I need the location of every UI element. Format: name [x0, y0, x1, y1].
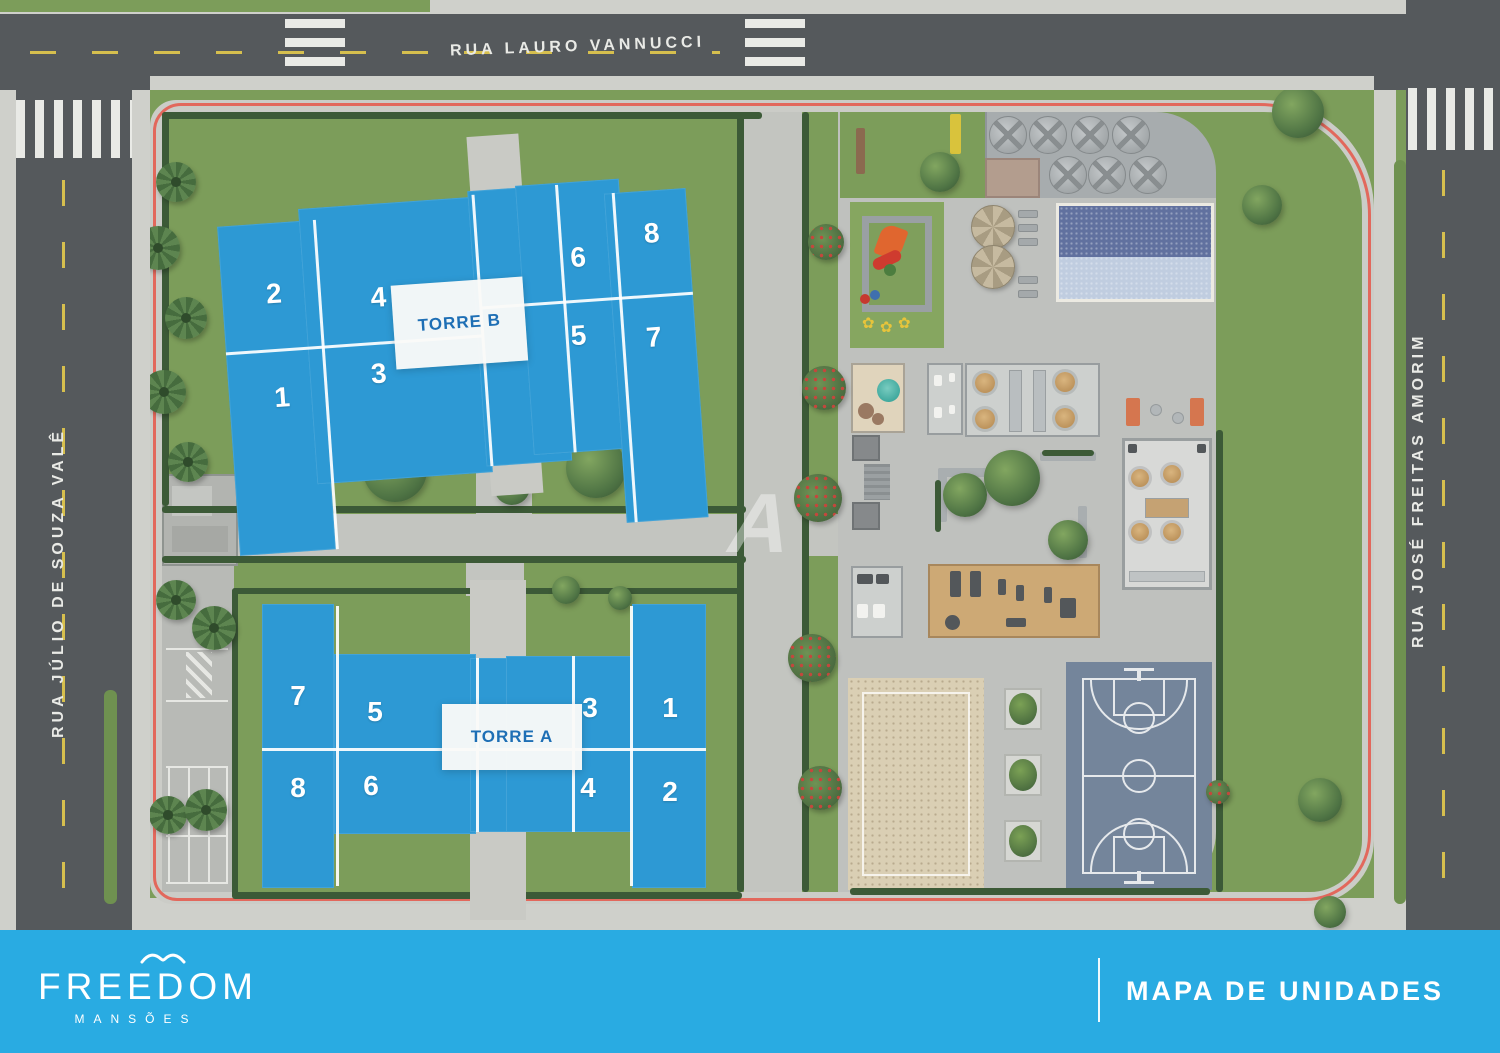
decor-layer [0, 0, 1500, 930]
unit-number-1: 1 [273, 381, 291, 414]
crosswalk [1408, 88, 1498, 150]
street-name-top: RUA LAURO VANNUCCI [450, 34, 706, 61]
brand-logo: FREEDOM MANSÕES [38, 948, 234, 1026]
grass-verge [1394, 160, 1406, 904]
palm-tree [149, 796, 187, 834]
pool-lounger [1018, 224, 1038, 232]
unit-number-3: 3 [370, 357, 388, 390]
tree [1272, 86, 1324, 138]
sun-umbrella-icon [971, 245, 1015, 289]
road-right: RUA JOSÉ FREITAS AMORIM [1406, 0, 1500, 930]
street-name-left: RUA JÚLIO DE SOUZA VALÊ [50, 428, 68, 738]
palm-tree [168, 442, 208, 482]
palm-tree [156, 580, 196, 620]
pool-lounger [1018, 276, 1038, 284]
parking-line [166, 882, 228, 884]
grass-strip [0, 0, 430, 12]
crosswalk [16, 100, 132, 158]
sidewalk [150, 76, 1374, 90]
planter-box [1004, 820, 1042, 862]
left-outer-sidewalk [0, 90, 16, 930]
right-inner-sidewalk [1374, 90, 1396, 930]
unit-number-6: 6 [363, 770, 379, 802]
tower-torre-a: 75318642 TORRE A [238, 596, 724, 902]
pool-lounger [1018, 210, 1038, 218]
planter-box [1004, 688, 1042, 730]
flowering-bush [1206, 780, 1230, 804]
parking-line [166, 835, 228, 837]
unit-number-1: 1 [662, 692, 678, 724]
footer-banner: FREEDOM MANSÕES MAPA DE UNIDADES [0, 930, 1500, 1053]
tree [1314, 896, 1346, 928]
planter-box [1004, 754, 1042, 796]
street-name-right: RUA JOSÉ FREITAS AMORIM [1410, 333, 1428, 648]
flowering-bush [808, 224, 844, 260]
vent-circle [1029, 116, 1067, 154]
tree [943, 473, 987, 517]
unit-number-7: 7 [645, 321, 663, 354]
palm-tree [165, 297, 207, 339]
pool-lounger [1018, 290, 1038, 298]
tower-label-torre-a: TORRE A [442, 704, 582, 770]
tower-torre-b: 24681357 TORRE B [213, 130, 710, 562]
palm-tree [192, 606, 236, 650]
watermark-logo: A [695, 478, 827, 568]
parking-line [226, 766, 228, 882]
flowering-bush [788, 634, 836, 682]
unit-number-2: 2 [265, 277, 283, 310]
unit-number-5: 5 [570, 319, 588, 352]
vent-circle [989, 116, 1027, 154]
unit-number-6: 6 [569, 241, 587, 274]
flowering-bush [802, 366, 846, 410]
unit-number-5: 5 [367, 696, 383, 728]
unit-number-3: 3 [582, 692, 598, 724]
parking-line [166, 700, 228, 702]
palm-tree [156, 162, 196, 202]
planter-bush [1009, 693, 1037, 725]
palm-tree [185, 789, 227, 831]
vent-circle [1112, 116, 1150, 154]
bird-icon [140, 948, 186, 966]
road-left: RUA JÚLIO DE SOUZA VALÊ [16, 88, 132, 930]
road-top: RUA LAURO VANNUCCI [0, 14, 1500, 90]
vent-circle [1049, 156, 1087, 194]
planter-bush [1009, 825, 1037, 857]
left-inner-sidewalk [132, 90, 150, 930]
planter-bush [1009, 759, 1037, 791]
vent-circle [1071, 116, 1109, 154]
unit-number-8: 8 [643, 217, 661, 250]
site-plan-page: ✿✿✿ [0, 0, 1500, 1053]
unit-number-8: 8 [290, 772, 306, 804]
grass-verge [104, 690, 117, 904]
tower-label-text: TORRE A [471, 727, 554, 747]
footer-title: MAPA DE UNIDADES [1126, 976, 1444, 1007]
unit-number-4: 4 [370, 281, 388, 314]
tree [1048, 520, 1088, 560]
tower-label-text: TORRE B [417, 310, 501, 336]
brand-name: FREEDOM [38, 966, 234, 1008]
footer-separator [1098, 958, 1100, 1022]
tree [1298, 778, 1342, 822]
unit-number-2: 2 [662, 776, 678, 808]
vent-circle [1088, 156, 1126, 194]
flowering-bush [798, 766, 842, 810]
vent-circle [1129, 156, 1167, 194]
pool-lounger [1018, 238, 1038, 246]
site-map: ✿✿✿ [0, 0, 1500, 930]
sun-umbrella-icon [971, 205, 1015, 249]
tree [984, 450, 1040, 506]
road-center-line [1442, 170, 1445, 905]
tree [1242, 185, 1282, 225]
unit-number-7: 7 [290, 680, 306, 712]
tree [920, 152, 960, 192]
tower-label-torre-b: TORRE B [391, 277, 529, 370]
parking-line [166, 766, 228, 768]
unit-number-4: 4 [580, 772, 596, 804]
brand-subtitle: MANSÕES [38, 1012, 234, 1026]
